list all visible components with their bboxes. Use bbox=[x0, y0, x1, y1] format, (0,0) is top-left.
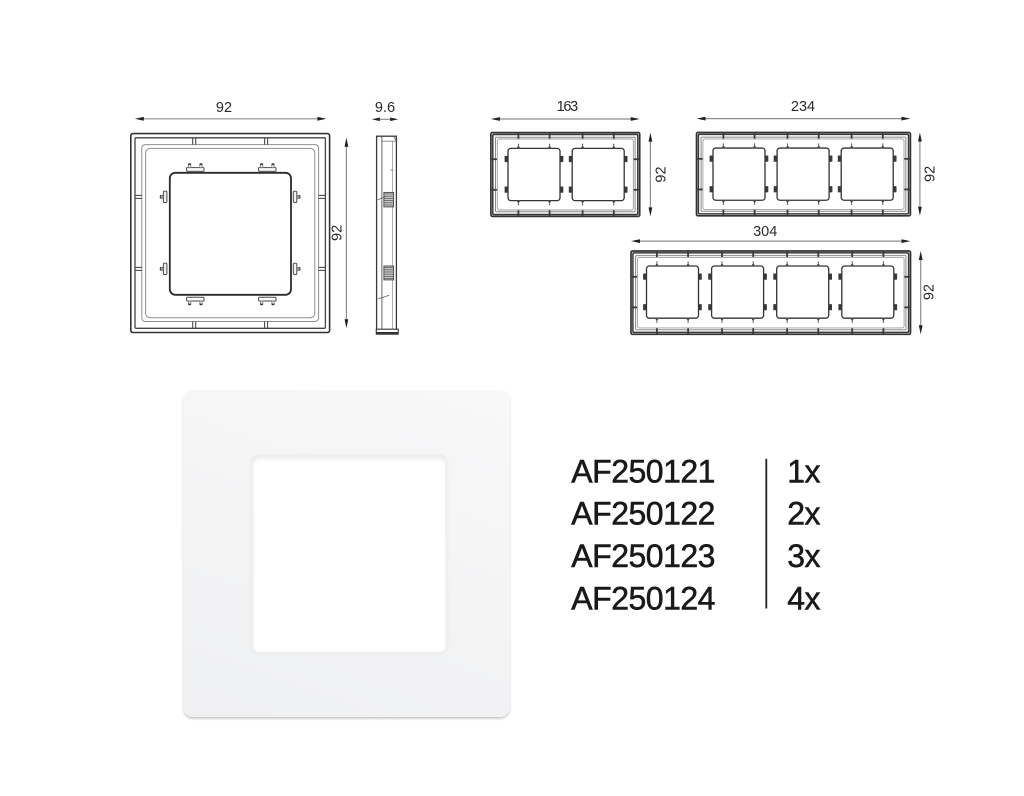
svg-text:92: 92 bbox=[216, 100, 232, 116]
svg-text:1x: 1x bbox=[787, 453, 820, 489]
svg-text:92: 92 bbox=[922, 284, 938, 300]
svg-text:3x: 3x bbox=[787, 538, 820, 574]
svg-text:2x: 2x bbox=[787, 496, 820, 532]
svg-text:AF250124: AF250124 bbox=[571, 581, 715, 617]
svg-text:9.6: 9.6 bbox=[375, 100, 395, 116]
svg-text:AF250123: AF250123 bbox=[571, 538, 715, 574]
svg-text:AF250121: AF250121 bbox=[571, 453, 715, 489]
svg-text:92: 92 bbox=[653, 166, 669, 182]
svg-text:92: 92 bbox=[923, 166, 939, 182]
svg-text:304: 304 bbox=[753, 224, 777, 240]
svg-text:92: 92 bbox=[329, 225, 345, 241]
svg-text:4x: 4x bbox=[787, 581, 820, 617]
svg-text:163: 163 bbox=[557, 99, 579, 115]
svg-text:234: 234 bbox=[791, 99, 815, 115]
svg-text:AF250122: AF250122 bbox=[571, 496, 715, 532]
